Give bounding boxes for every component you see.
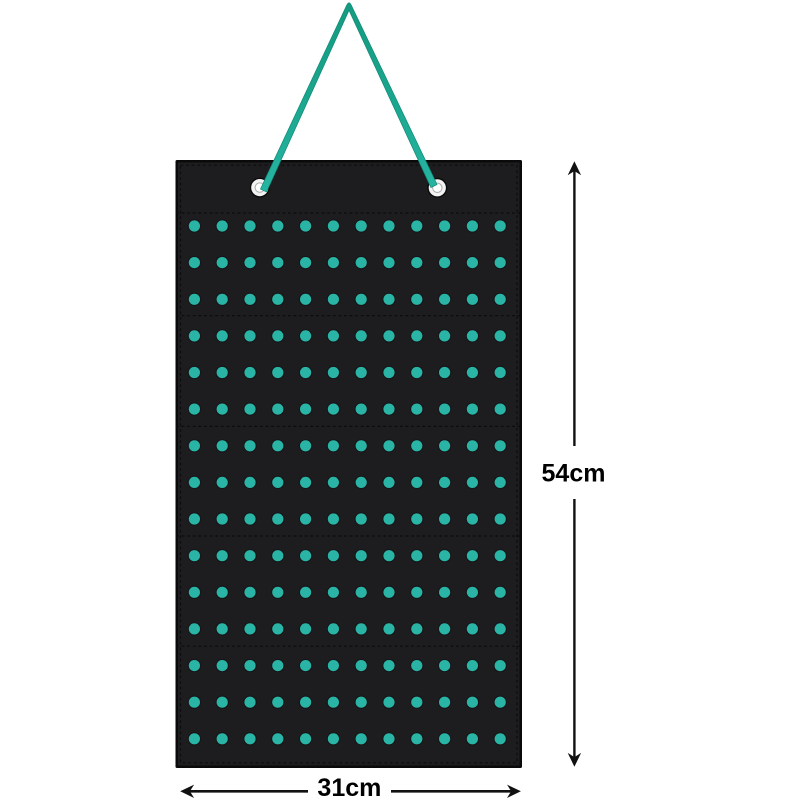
svg-text:54cm: 54cm bbox=[542, 460, 606, 488]
svg-text:31cm: 31cm bbox=[317, 774, 381, 800]
